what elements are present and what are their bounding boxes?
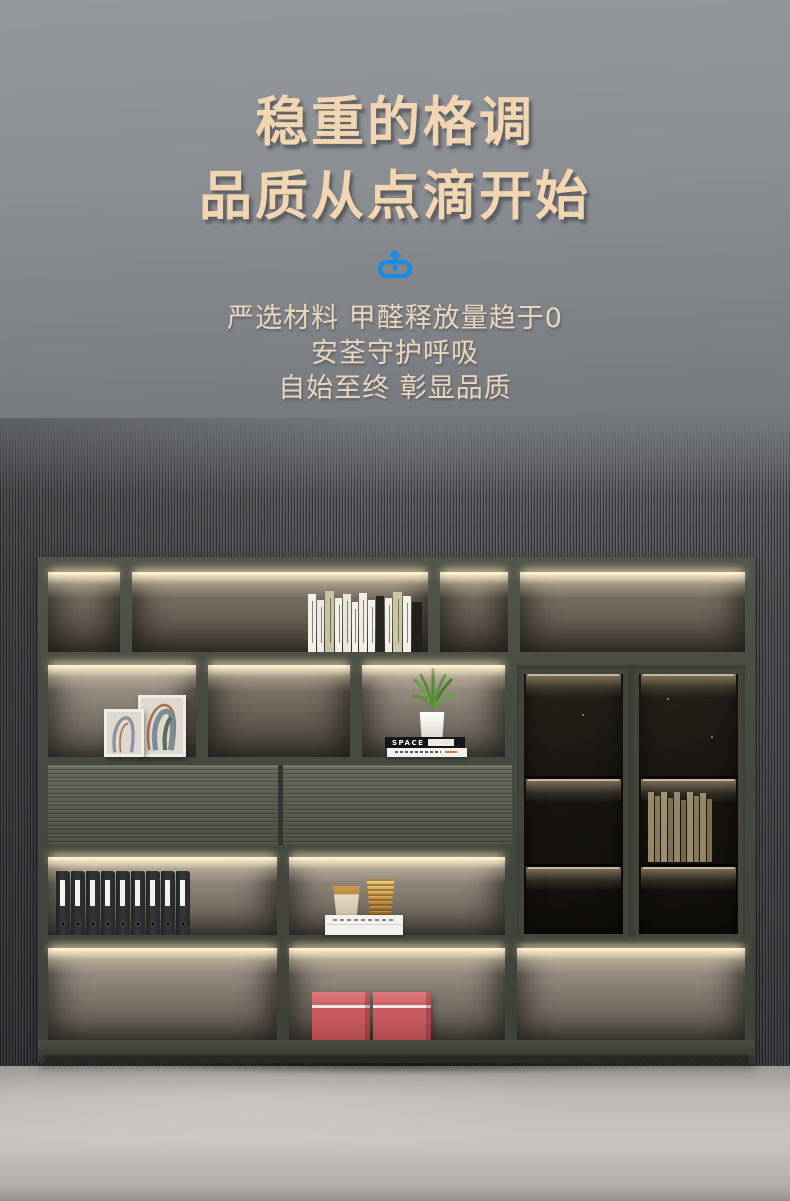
cell-top-3	[440, 572, 508, 652]
glass-speck	[711, 736, 713, 738]
white-pot	[419, 712, 445, 739]
book-spine	[308, 594, 316, 652]
ribbed-gold-vase	[365, 879, 396, 915]
product-poster: 稳重的格调 品质从点滴开始 严选材料 甲醛释放量趋于0 安荃守护呼吸 自始至终 …	[0, 0, 790, 1201]
drawer-front-left	[48, 765, 278, 845]
cell-top-1	[48, 572, 120, 652]
cell-red-boxes	[289, 948, 505, 1040]
glass-book-spine	[694, 796, 699, 862]
glass-speck	[667, 698, 669, 700]
cabinet-base	[38, 1040, 755, 1063]
glass-speck	[582, 714, 584, 716]
cell-binders	[48, 857, 277, 935]
glass-book-spine	[661, 792, 667, 862]
glass-book-spine	[700, 793, 706, 862]
glass-book-spine	[668, 798, 673, 862]
book-spine	[376, 596, 384, 652]
white-book-stack	[325, 915, 403, 935]
led-strip	[526, 779, 621, 803]
book-spine	[403, 596, 411, 652]
lower-book	[387, 748, 467, 757]
led-strip	[641, 867, 736, 891]
cell-empty-mid	[208, 665, 350, 757]
glass-book-spine	[681, 800, 686, 862]
led-strip	[526, 674, 621, 698]
binder	[176, 871, 190, 935]
book-spine	[368, 600, 375, 652]
plant-leaves	[407, 663, 459, 713]
subtitle-line-3: 自始至终 彰显品质	[0, 371, 790, 406]
binder	[116, 871, 130, 935]
floor	[0, 1066, 790, 1201]
led-strip	[526, 867, 621, 891]
book-spine	[335, 598, 342, 652]
art-frames	[96, 687, 206, 757]
cell-frames	[48, 665, 196, 757]
book-spine	[385, 598, 392, 652]
glass-book-spine	[687, 792, 693, 862]
book-spine	[352, 602, 358, 652]
glass-door-right	[634, 669, 743, 939]
headline-line-1: 稳重的格调	[0, 86, 790, 160]
book-spine	[343, 594, 351, 652]
glass-book-spine	[674, 792, 680, 862]
book-spine	[317, 600, 324, 652]
binder	[56, 871, 70, 935]
cell-bottom-right	[517, 948, 745, 1040]
binder	[146, 871, 160, 935]
cell-top-4	[520, 572, 745, 652]
red-box	[373, 992, 431, 1040]
binder-row	[56, 871, 191, 935]
red-gift-boxes	[312, 992, 431, 1040]
cell-plant: SPACE	[362, 665, 505, 757]
bookshelf-cabinet: SPACE	[38, 557, 755, 1063]
binder	[86, 871, 100, 935]
binder	[101, 871, 115, 935]
book-spine	[359, 593, 367, 652]
book-spine	[325, 591, 334, 652]
glass-book-spine	[707, 799, 712, 862]
subtitle-line-2: 安荃守护呼吸	[0, 336, 790, 371]
space-book-tag	[428, 739, 454, 746]
cell-top-2	[132, 572, 428, 652]
subtitle-line-1: 严选材料 甲醛释放量趋于0	[0, 301, 790, 336]
art-frame-small	[104, 709, 144, 757]
glass-book-spine	[648, 792, 654, 862]
book-spine	[412, 602, 422, 652]
binder	[161, 871, 175, 935]
space-book: SPACE	[385, 737, 465, 748]
books-behind-glass	[648, 792, 712, 862]
cabinet-floor-shadow	[26, 1061, 766, 1078]
red-box	[312, 992, 370, 1040]
book-spine	[393, 592, 402, 652]
glass-book-spine	[655, 796, 660, 862]
drawer-front-right	[283, 765, 513, 845]
binder	[71, 871, 85, 935]
headline-line-2: 品质从点滴开始	[0, 160, 790, 234]
art-frame-large	[138, 695, 186, 757]
binder	[131, 871, 145, 935]
cell-gold-cups	[289, 857, 505, 935]
led-strip	[641, 674, 736, 698]
drawer-band	[48, 765, 512, 845]
subtitle: 严选材料 甲醛释放量趋于0 安荃守护呼吸 自始至终 彰显品质	[0, 301, 790, 406]
cell-bottom-left	[48, 948, 277, 1040]
headline: 稳重的格调 品质从点滴开始	[0, 86, 790, 234]
gold-rim-cup	[333, 886, 360, 915]
glass-cabinet-section	[517, 665, 745, 943]
space-book-label: SPACE	[385, 739, 424, 747]
power-arrow-icon	[0, 247, 790, 283]
book-row	[308, 591, 422, 652]
glass-door-left	[519, 669, 628, 939]
